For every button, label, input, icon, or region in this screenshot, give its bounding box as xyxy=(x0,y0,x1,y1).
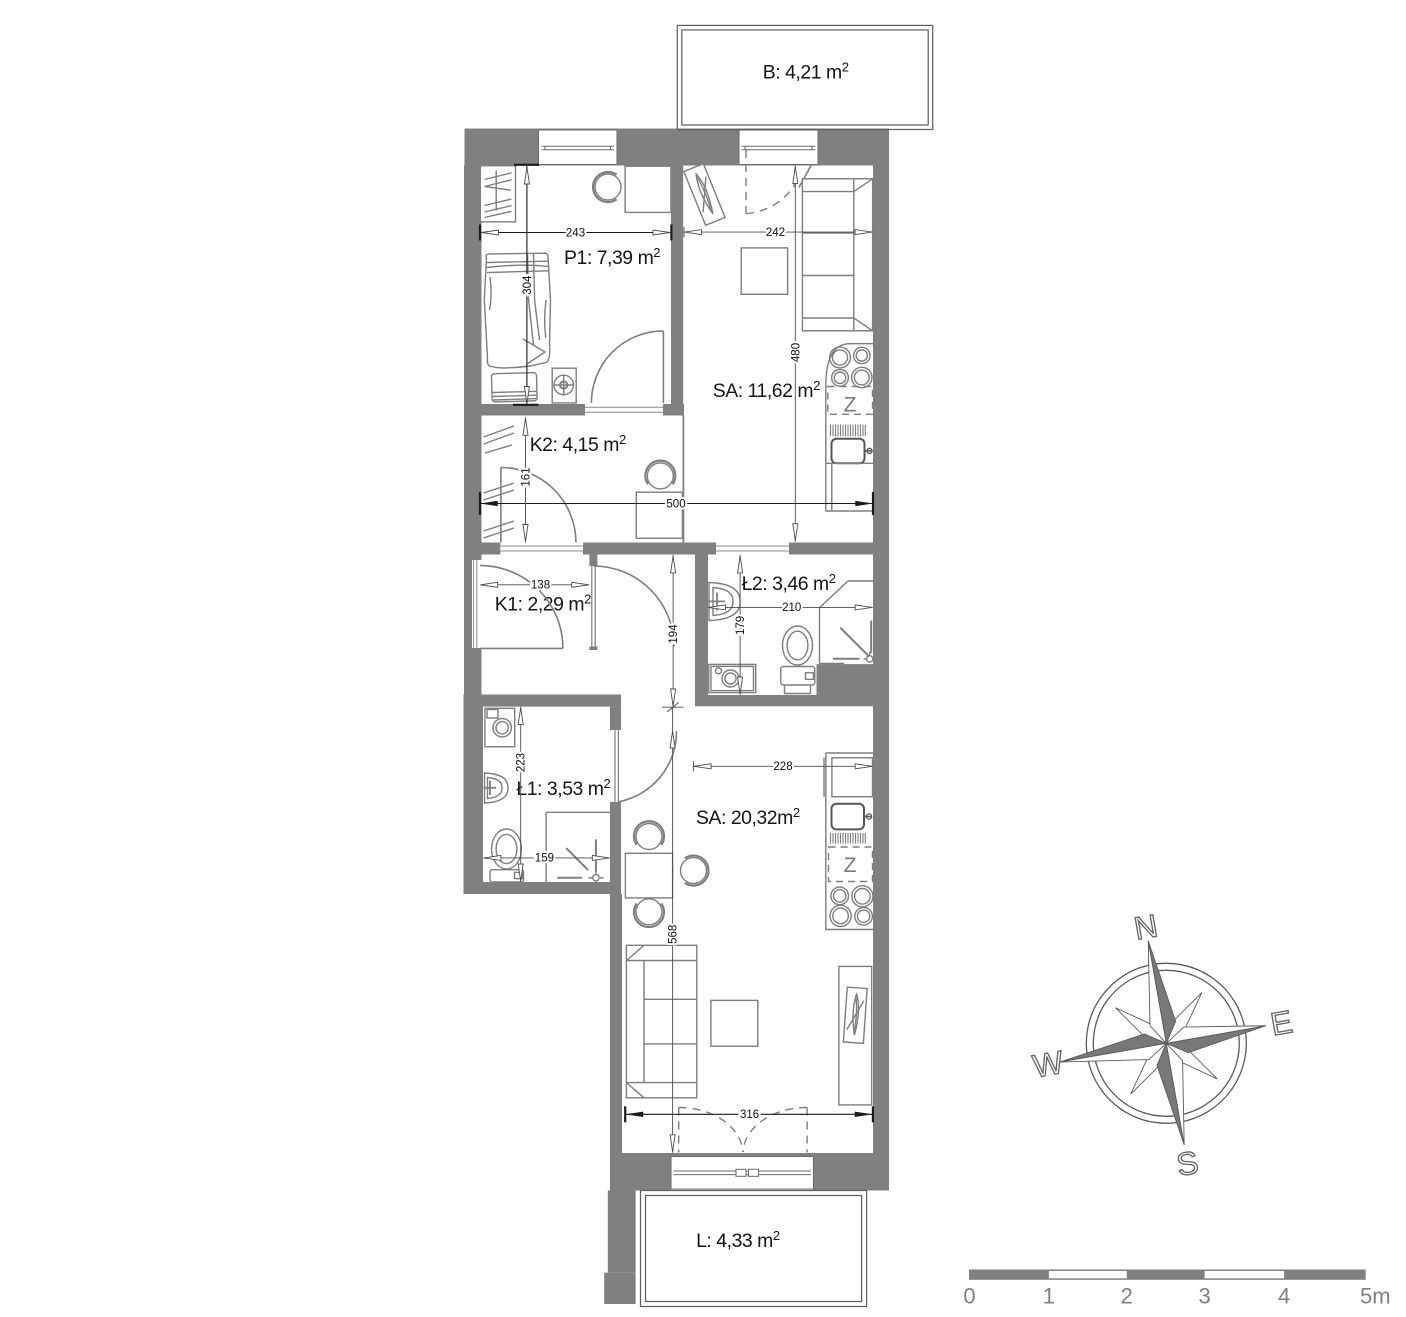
svg-text:194: 194 xyxy=(668,624,680,644)
svg-text:5m: 5m xyxy=(1360,1284,1391,1309)
svg-text:SA: 11,62 m2: SA: 11,62 m2 xyxy=(713,378,820,402)
svg-text:500: 500 xyxy=(666,498,685,510)
svg-text:1: 1 xyxy=(1043,1284,1055,1309)
svg-text:SA: 20,32m2: SA: 20,32m2 xyxy=(696,805,800,829)
svg-text:242: 242 xyxy=(766,227,785,239)
svg-text:179: 179 xyxy=(735,616,747,635)
svg-text:161: 161 xyxy=(521,467,533,486)
svg-text:P1: 7,39 m2: P1: 7,39 m2 xyxy=(564,245,660,269)
svg-text:228: 228 xyxy=(773,761,792,773)
svg-text:304: 304 xyxy=(522,275,534,295)
svg-text:3: 3 xyxy=(1198,1284,1210,1309)
svg-text:223: 223 xyxy=(516,753,528,772)
svg-text:Z: Z xyxy=(844,394,857,417)
svg-text:L: 4,33 m2: L: 4,33 m2 xyxy=(696,1228,780,1252)
svg-text:K2: 4,15 m2: K2: 4,15 m2 xyxy=(530,432,626,456)
svg-text:480: 480 xyxy=(790,343,802,362)
svg-text:2: 2 xyxy=(1121,1284,1133,1309)
svg-text:0: 0 xyxy=(963,1284,975,1309)
svg-text:B: 4,21 m2: B: 4,21 m2 xyxy=(763,59,849,83)
svg-text:159: 159 xyxy=(535,853,554,865)
svg-text:Ł1: 3,53 m2: Ł1: 3,53 m2 xyxy=(516,776,610,800)
svg-text:Ł2: 3,46 m2: Ł2: 3,46 m2 xyxy=(742,571,836,595)
svg-text:568: 568 xyxy=(668,925,680,944)
svg-text:Z: Z xyxy=(844,854,857,877)
svg-text:4: 4 xyxy=(1278,1284,1290,1309)
svg-text:210: 210 xyxy=(782,602,801,614)
svg-text:138: 138 xyxy=(531,580,550,592)
svg-text:243: 243 xyxy=(566,227,585,239)
svg-text:316: 316 xyxy=(740,1109,759,1121)
